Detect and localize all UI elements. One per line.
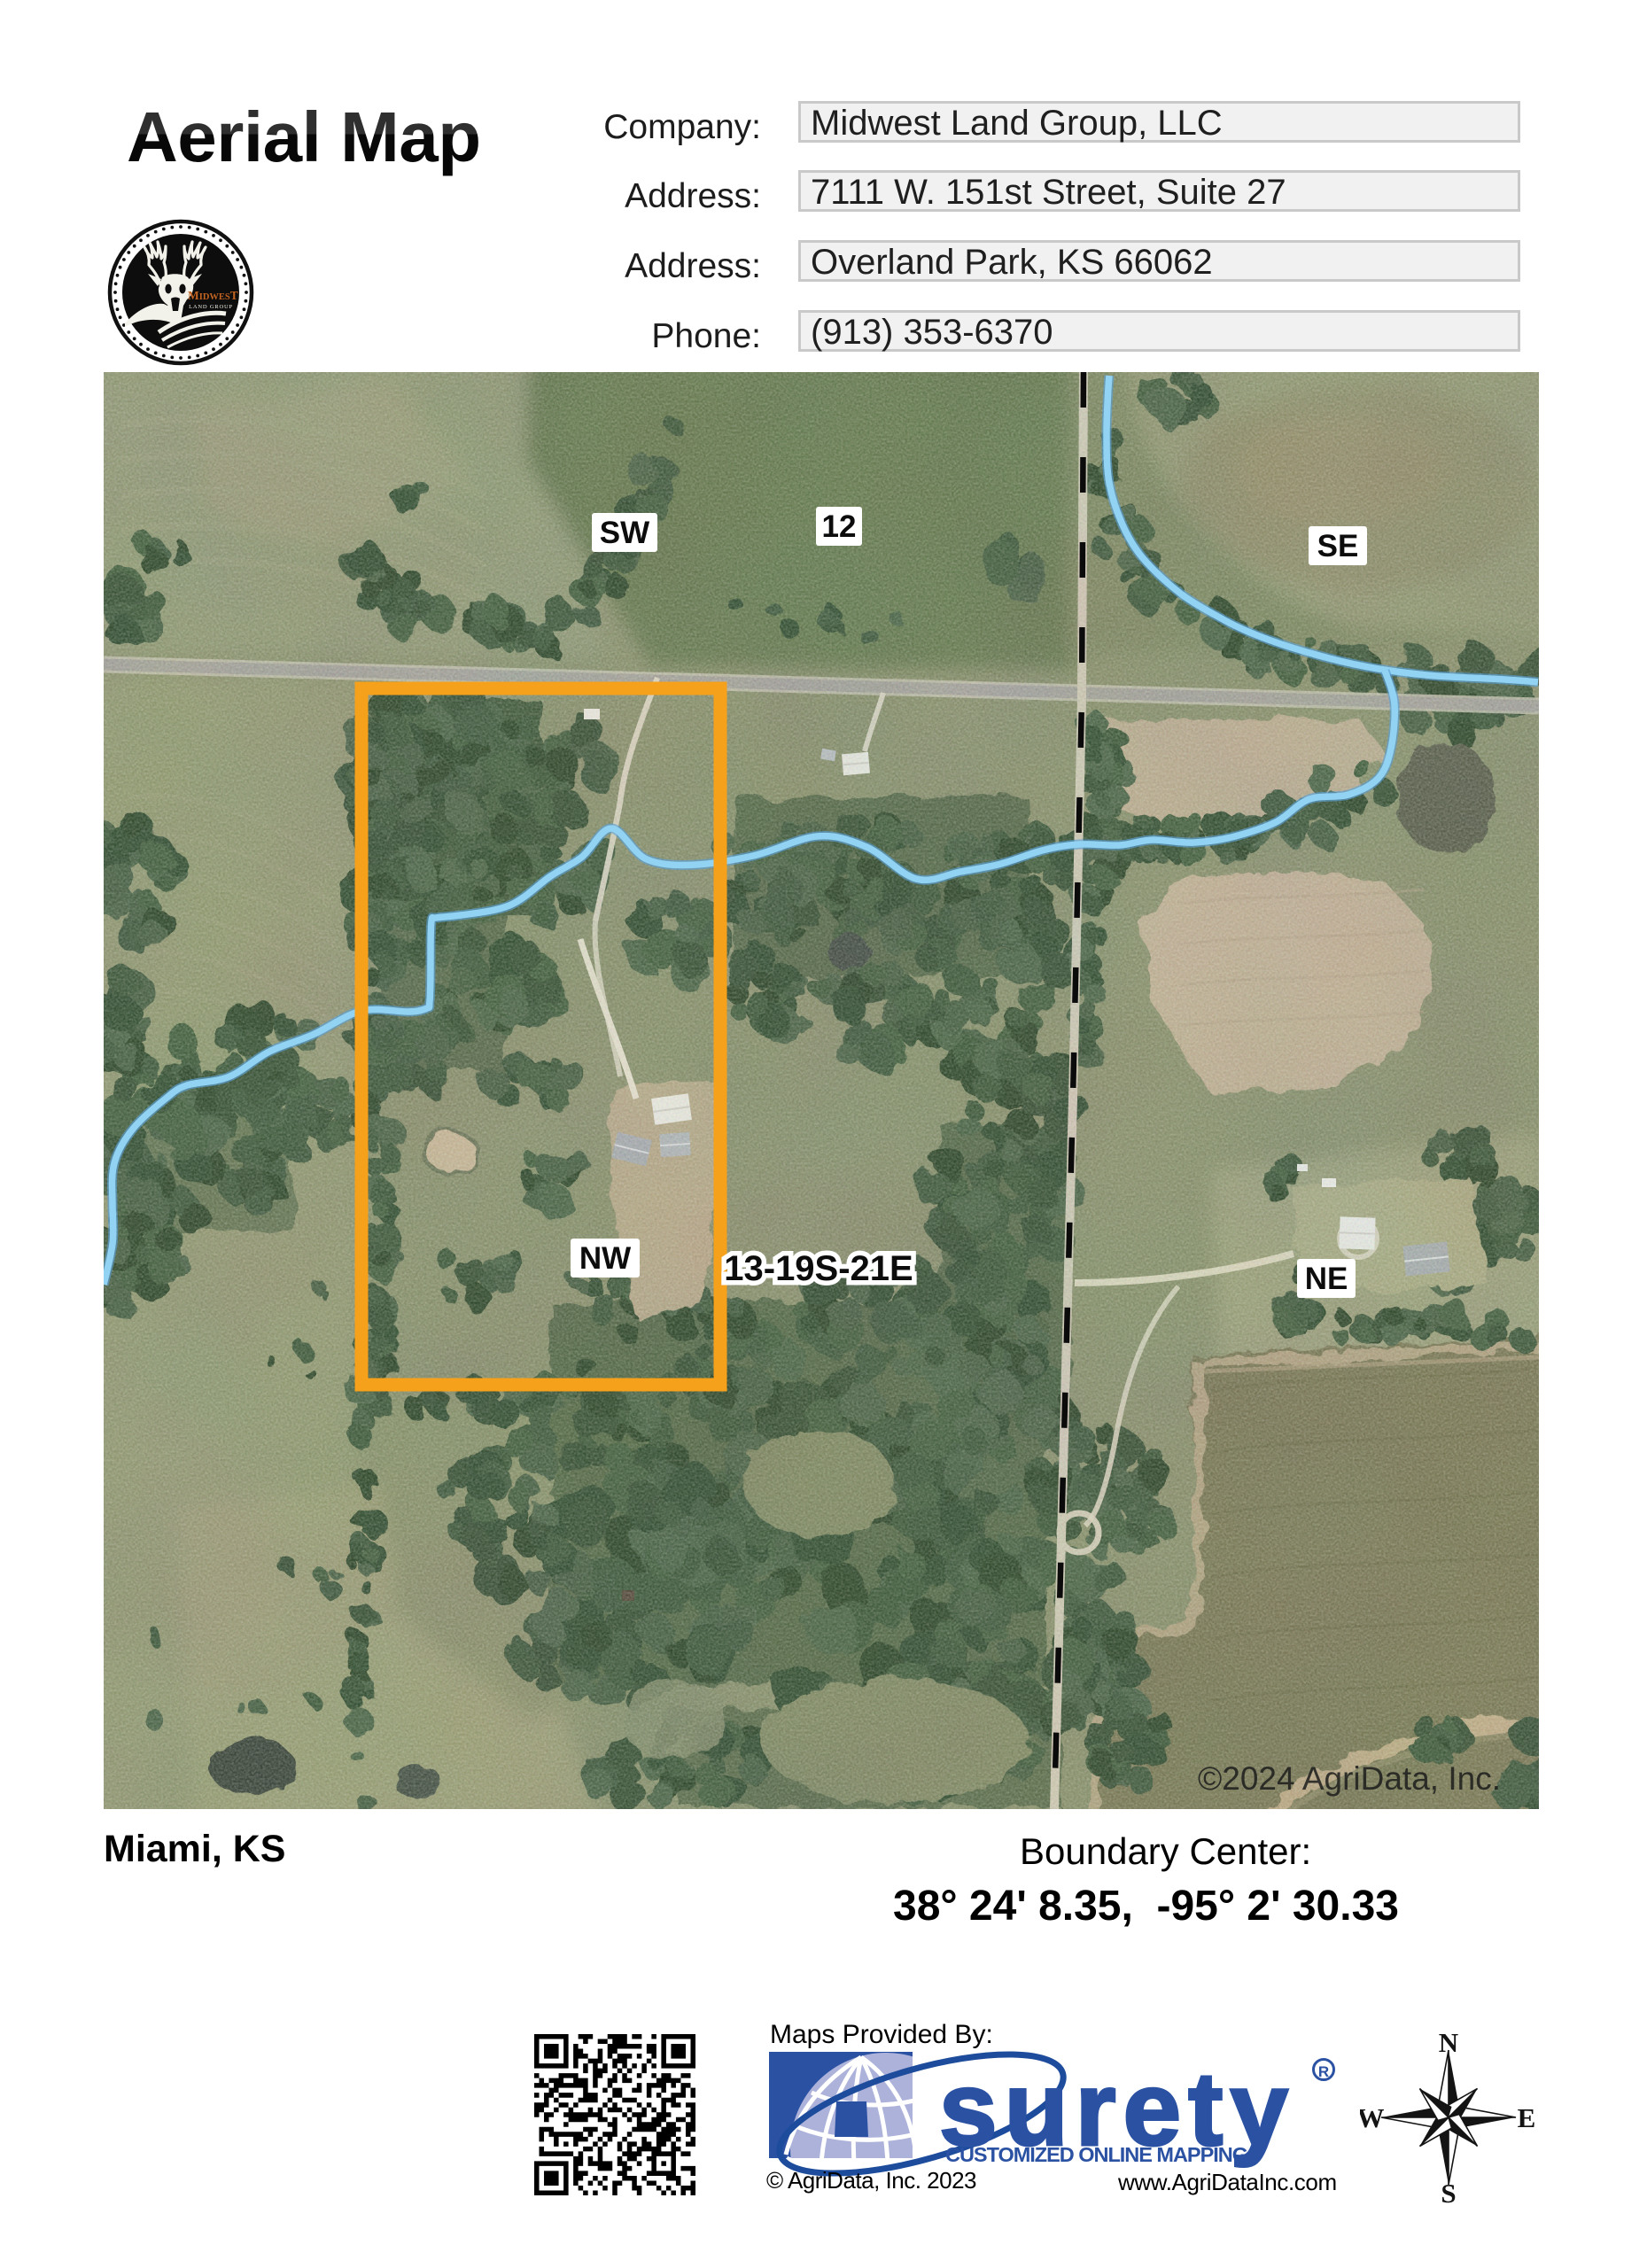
svg-text:E: E (1518, 2102, 1536, 2133)
svg-text:R: R (1318, 2063, 1329, 2080)
svg-text:N: N (1439, 2027, 1458, 2058)
svg-text:S: S (1441, 2178, 1456, 2209)
svg-text:12: 12 (822, 509, 857, 544)
svg-text:CUSTOMIZED ONLINE MAPPING: CUSTOMIZED ONLINE MAPPING (945, 2143, 1248, 2166)
svg-text:SE: SE (1317, 529, 1359, 563)
svg-text:13-19S-21E: 13-19S-21E (724, 1249, 913, 1288)
svg-text:LAND GROUP: LAND GROUP (189, 304, 233, 310)
svg-text:NE: NE (1305, 1262, 1348, 1296)
svg-text:W: W (1360, 2102, 1385, 2133)
svg-text:SW: SW (600, 516, 649, 550)
svg-text:©2024 AgriData, Inc.: ©2024 AgriData, Inc. (1198, 1760, 1501, 1797)
svg-text:NW: NW (579, 1241, 631, 1276)
